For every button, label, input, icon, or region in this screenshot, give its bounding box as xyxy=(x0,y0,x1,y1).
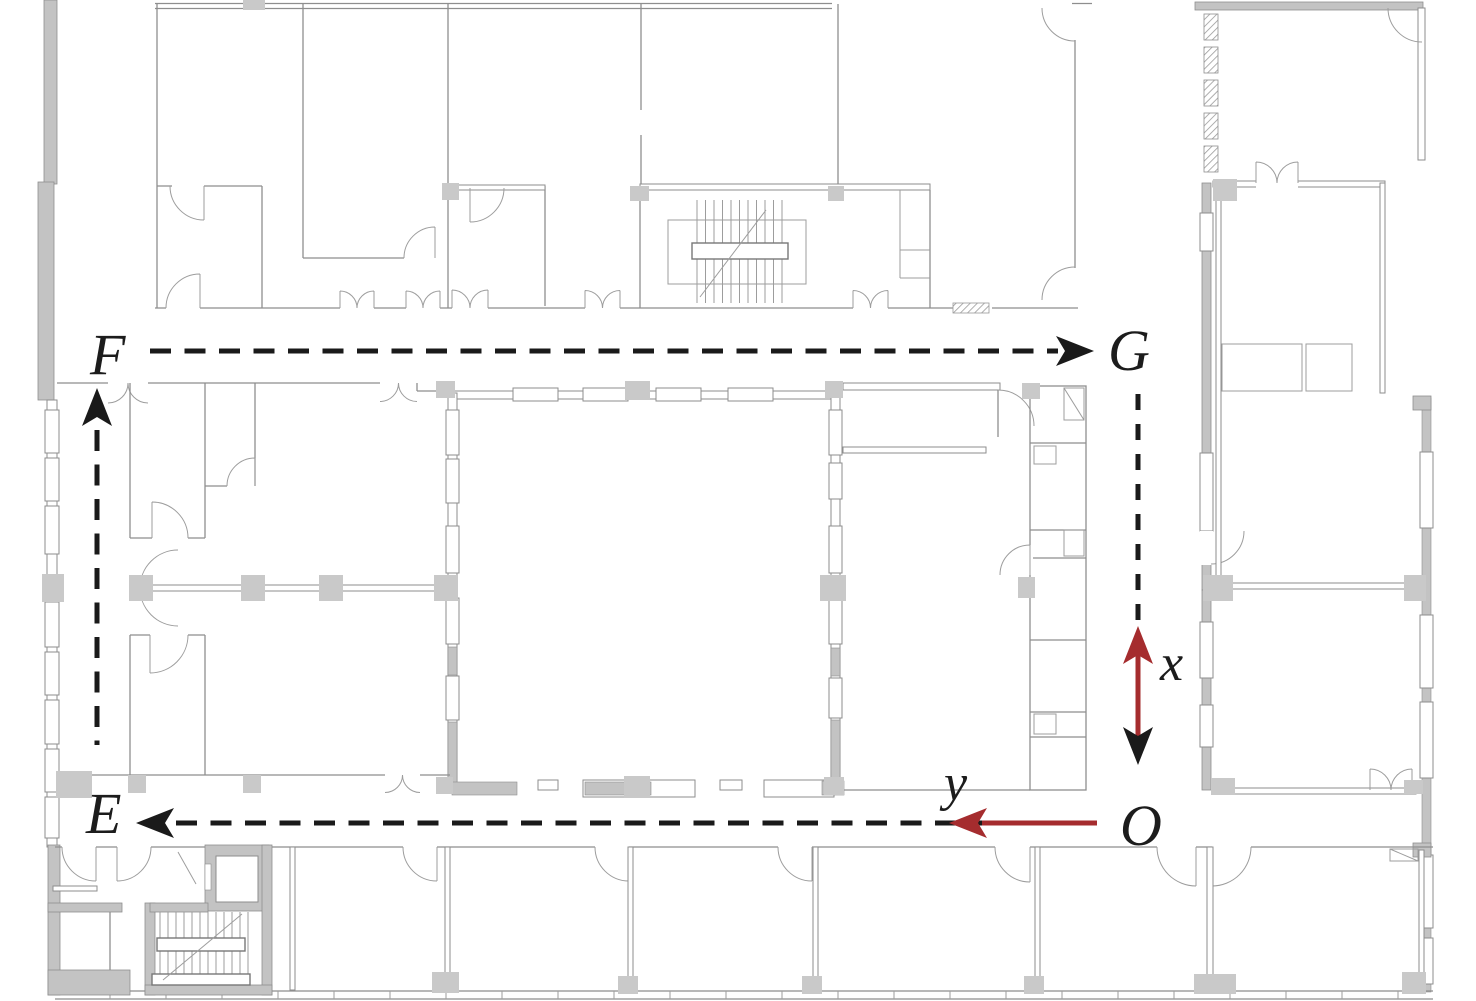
waypoint-label-e: E xyxy=(85,781,121,846)
waypoint-label-g: G xyxy=(1108,318,1150,383)
y-axis-arrow xyxy=(949,808,1097,838)
x-axis-arrow xyxy=(1123,626,1153,765)
stairwell-top xyxy=(668,200,806,303)
arrowhead-at-g xyxy=(1056,336,1094,366)
courtyard xyxy=(446,388,844,797)
right-wing-rooms xyxy=(1200,8,1422,794)
floor-plan-canvas: F G E O x y xyxy=(0,0,1476,1001)
room-right-of-courtyard xyxy=(843,383,1034,453)
elevator xyxy=(205,845,269,911)
top-rooms xyxy=(155,4,1078,313)
origin-label-o: O xyxy=(1120,793,1162,858)
arrowhead-at-e xyxy=(136,808,174,838)
utility-strip-rooms xyxy=(1000,386,1086,790)
waypoint-label-f: F xyxy=(89,322,126,387)
axis-label-y: y xyxy=(939,755,968,812)
arrowhead-at-f xyxy=(82,388,112,426)
floor-plan-figure: F G E O x y xyxy=(0,0,1476,1001)
axis-label-x: x xyxy=(1159,635,1183,692)
